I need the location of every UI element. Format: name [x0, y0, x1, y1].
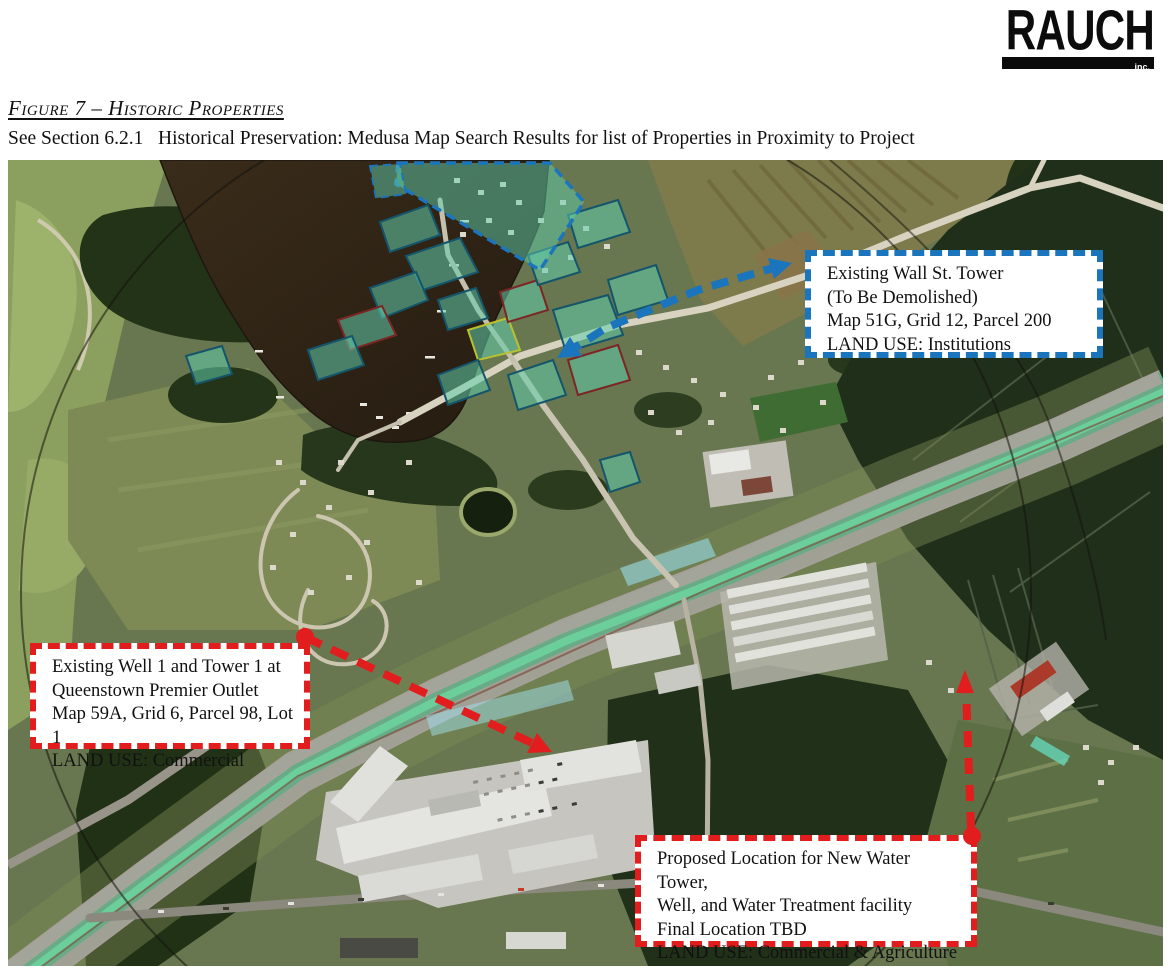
aerial-map: Existing Wall St. Tower (To Be Demolishe…: [8, 160, 1163, 966]
pond: [461, 489, 515, 535]
callout-line: Existing Well 1 and Tower 1 at: [52, 656, 294, 680]
rauch-logo: RAUCH inc.: [964, 6, 1154, 69]
callout-line: Well, and Water Treatment facility: [657, 895, 961, 919]
callout-line: Final Location TBD: [657, 919, 961, 943]
callout-line: LAND USE: Commercial: [52, 750, 294, 774]
callout-line: LAND USE: Commercial & Agriculture: [657, 942, 961, 966]
callout-existing-well: Existing Well 1 and Tower 1 at Queenstow…: [30, 643, 310, 749]
figure-title: Figure 7 – Historic Properties: [8, 96, 284, 121]
callout-wall-st-tower: Existing Wall St. Tower (To Be Demolishe…: [805, 250, 1103, 358]
callout-line: Map 51G, Grid 12, Parcel 200: [827, 310, 1087, 334]
callout-line: (To Be Demolished): [827, 287, 1087, 311]
callout-line: Queenstown Premier Outlet: [52, 680, 294, 704]
callout-line: Map 59A, Grid 6, Parcel 98, Lot 1: [52, 703, 294, 750]
callout-line: Proposed Location for New Water Tower,: [657, 848, 961, 895]
gas-station: [703, 440, 794, 507]
callout-proposed-location: Proposed Location for New Water Tower, W…: [635, 835, 977, 947]
figure-subtitle: See Section 6.2.1 Historical Preservatio…: [8, 128, 915, 150]
logo-text: RAUCH: [1006, 5, 1154, 57]
callout-line: Existing Wall St. Tower: [827, 263, 1087, 287]
callout-line: LAND USE: Institutions: [827, 334, 1087, 358]
logo-suffix: inc.: [1134, 62, 1154, 72]
